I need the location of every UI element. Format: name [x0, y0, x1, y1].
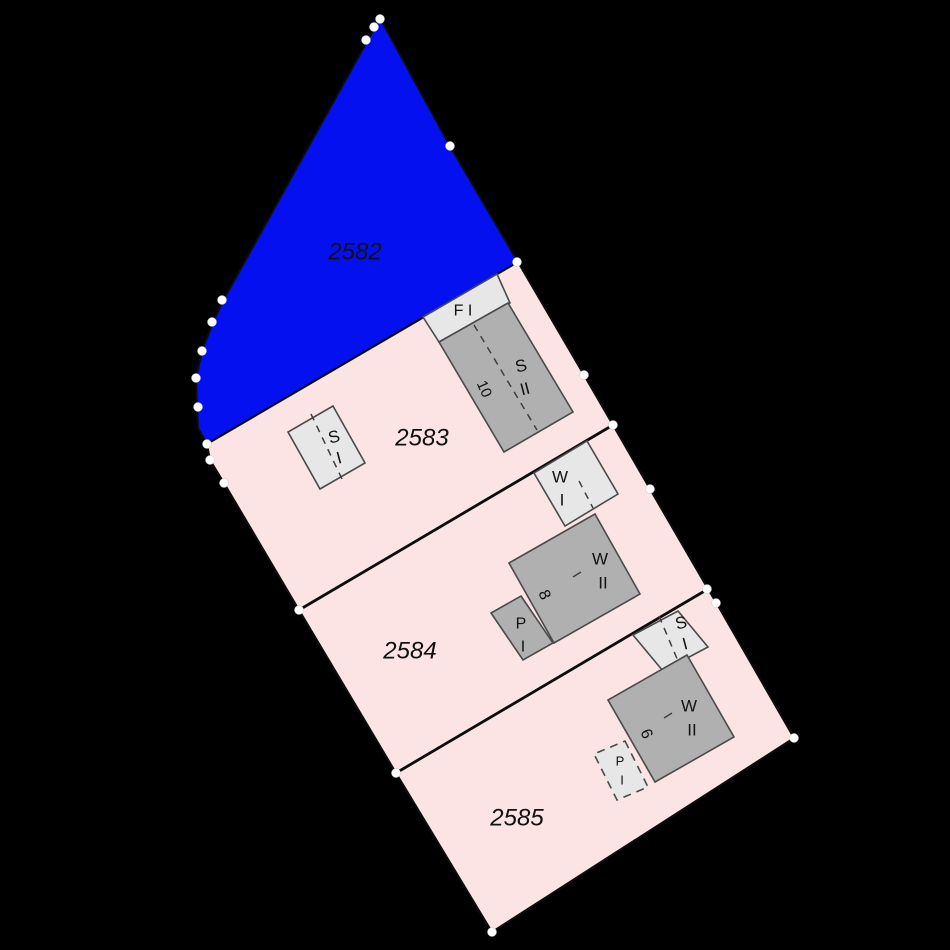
parcel-label-2583: 2583: [394, 425, 449, 452]
survey-point-icon: [370, 23, 379, 32]
parcel-label-2584: 2584: [382, 638, 436, 665]
survey-point-icon: [376, 15, 385, 24]
survey-point-icon: [218, 296, 227, 305]
building-use-label: P: [616, 754, 625, 769]
map-canvas: F ISII10SIWIPIWII8SIPIWII625822583258425…: [0, 0, 950, 950]
survey-point-icon: [790, 734, 799, 743]
survey-point-icon: [220, 479, 229, 488]
building-use-label: I: [521, 639, 525, 656]
parcel-label-2582: 2582: [327, 239, 381, 266]
survey-point-icon: [580, 371, 589, 380]
building-use-label: I: [620, 773, 624, 788]
building-use-label: W: [592, 550, 608, 569]
survey-point-icon: [646, 485, 655, 494]
survey-point-icon: [703, 585, 712, 594]
building-use-label: F I: [454, 303, 473, 320]
survey-point-icon: [206, 456, 215, 465]
building-use-label: P: [516, 616, 527, 633]
building-use-label: W: [681, 697, 697, 716]
building-use-label: II: [687, 721, 696, 740]
survey-point-icon: [392, 769, 401, 778]
survey-point-icon: [446, 142, 455, 151]
survey-point-icon: [208, 318, 217, 327]
survey-point-icon: [194, 403, 203, 412]
cadastral-map: F ISII10SIWIPIWII8SIPIWII625822583258425…: [0, 0, 950, 950]
survey-point-icon: [712, 599, 721, 608]
survey-point-icon: [203, 440, 212, 449]
building-use-label: I: [560, 491, 565, 510]
building-use-label: W: [552, 468, 568, 487]
survey-point-icon: [198, 347, 207, 356]
survey-point-icon: [192, 374, 201, 383]
building-use-label: II: [598, 574, 607, 593]
survey-point-icon: [609, 421, 618, 430]
survey-point-icon: [513, 258, 522, 267]
survey-point-icon: [362, 36, 371, 45]
parcel-label-2585: 2585: [489, 805, 544, 832]
survey-point-icon: [488, 928, 497, 937]
survey-point-icon: [295, 606, 304, 615]
